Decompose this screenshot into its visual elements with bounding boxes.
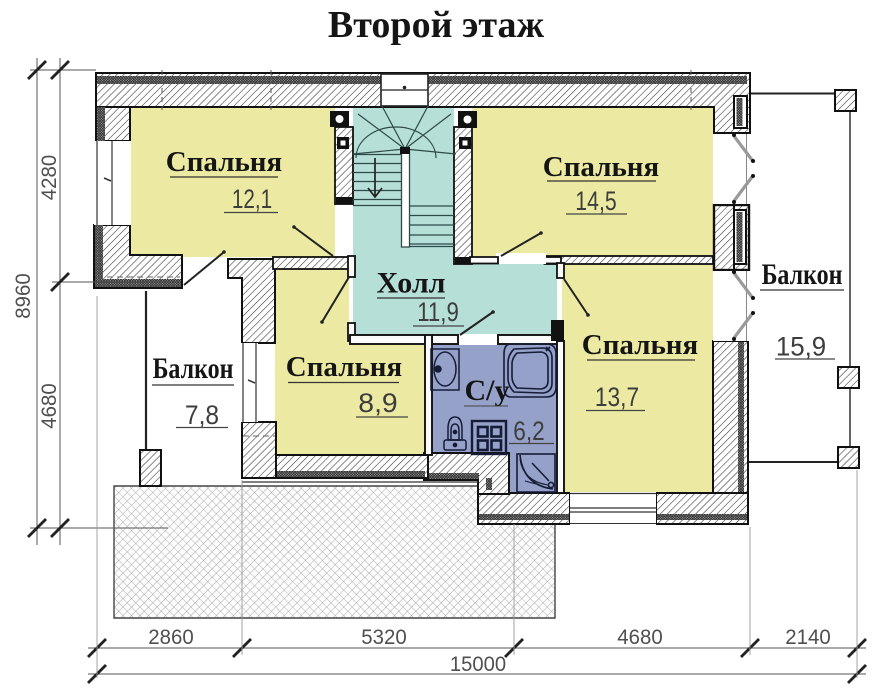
svg-text:4680: 4680 [38, 383, 62, 428]
svg-text:Спальня: Спальня [543, 151, 659, 183]
svg-text:Спальня: Спальня [286, 351, 402, 383]
svg-text:С/у: С/у [465, 374, 510, 407]
svg-text:2140: 2140 [785, 626, 830, 650]
svg-text:Спальня: Спальня [166, 146, 282, 178]
svg-text:Второй этаж: Второй этаж [328, 4, 545, 46]
svg-text:13,7: 13,7 [595, 382, 639, 412]
svg-text:12,1: 12,1 [232, 184, 272, 214]
svg-text:Балкон: Балкон [762, 257, 843, 290]
svg-text:5320: 5320 [361, 626, 406, 650]
svg-text:15000: 15000 [450, 652, 506, 676]
svg-text:6,2: 6,2 [513, 416, 545, 446]
svg-text:Холл: Холл [376, 267, 445, 300]
svg-text:4280: 4280 [38, 155, 62, 200]
svg-text:7,8: 7,8 [185, 401, 219, 430]
svg-text:15,9: 15,9 [776, 331, 826, 362]
svg-text:Балкон: Балкон [153, 351, 234, 384]
svg-text:8,9: 8,9 [358, 388, 397, 418]
svg-text:2860: 2860 [148, 626, 193, 650]
svg-text:14,5: 14,5 [575, 187, 616, 217]
svg-text:4680: 4680 [617, 626, 662, 650]
svg-text:11,9: 11,9 [417, 298, 459, 327]
svg-text:8960: 8960 [12, 273, 36, 318]
svg-text:Спальня: Спальня [582, 329, 698, 361]
